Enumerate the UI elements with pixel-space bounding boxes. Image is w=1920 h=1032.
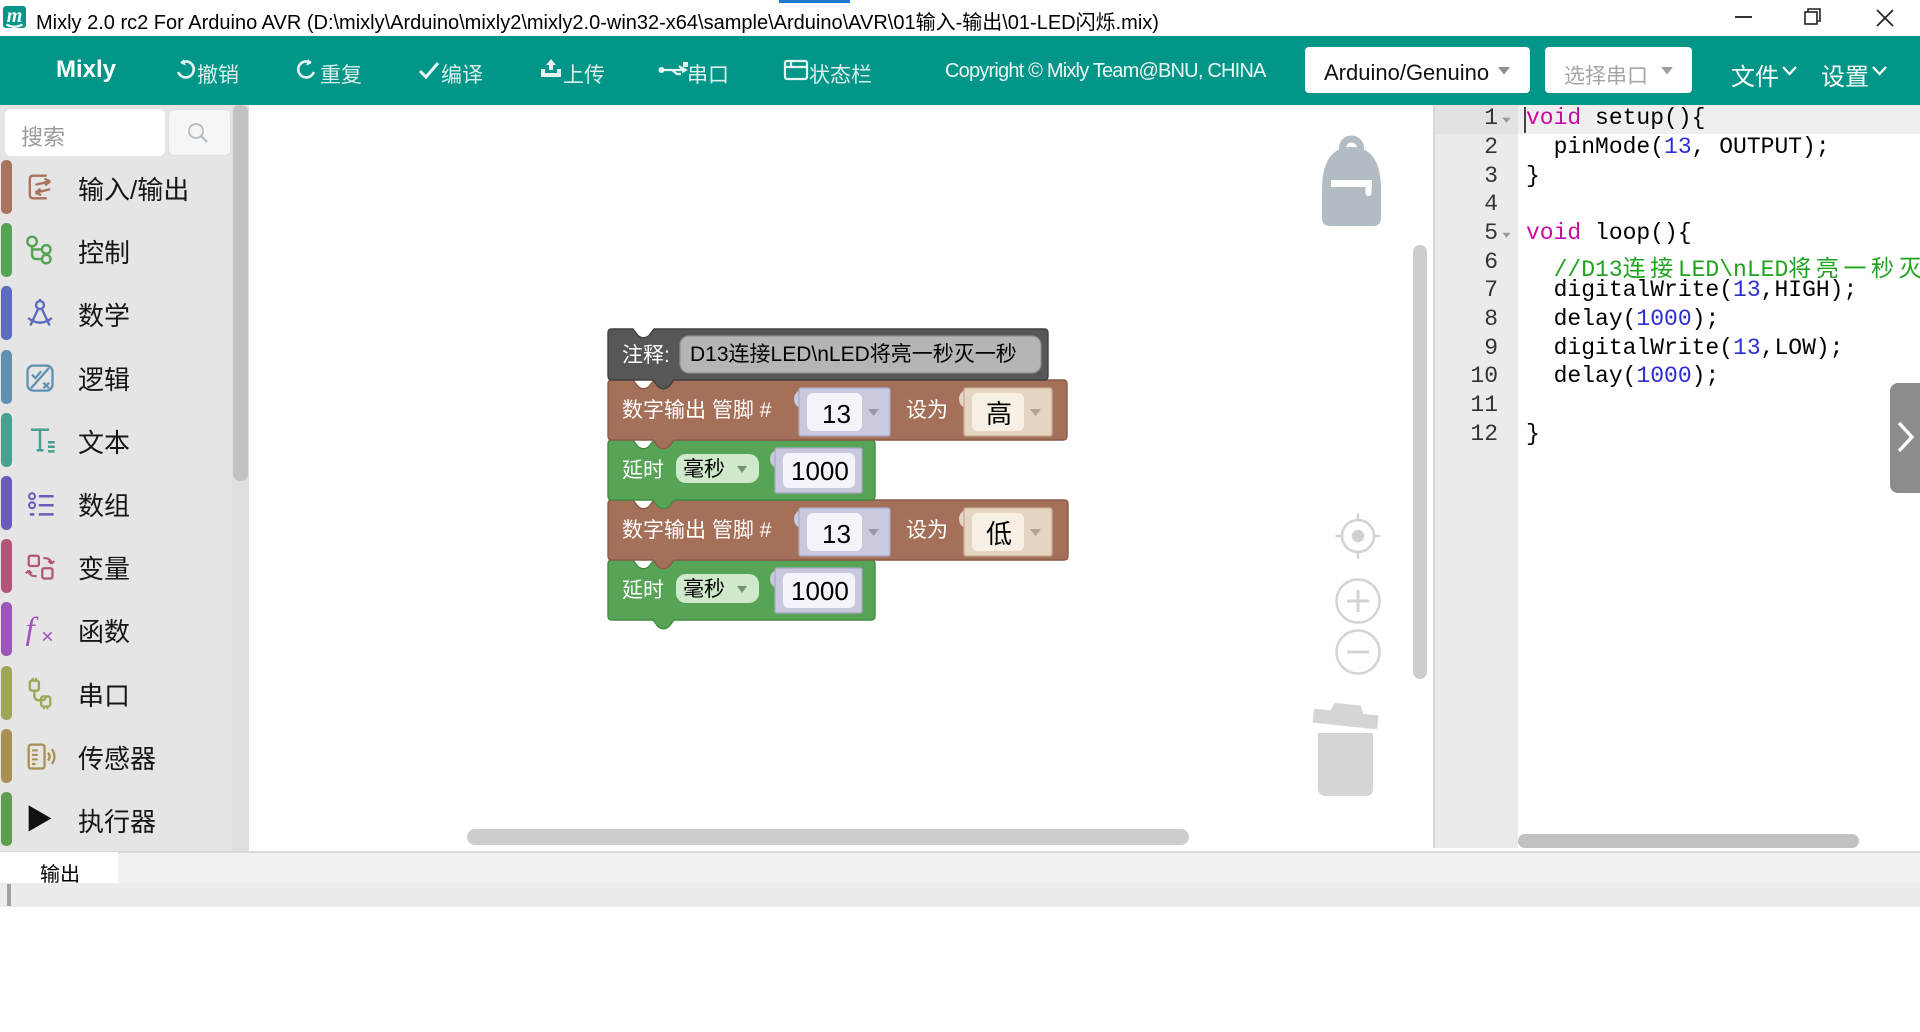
svg-text:设为: 设为	[906, 519, 948, 542]
svg-text:低: 低	[986, 519, 1012, 549]
svg-text:13: 13	[822, 519, 851, 549]
svg-text:1000: 1000	[791, 576, 849, 606]
svg-text:f: f	[25, 612, 39, 646]
svg-text:×: ×	[41, 625, 54, 646]
svg-text:13: 13	[822, 399, 851, 429]
svg-text:毫秒: 毫秒	[683, 458, 725, 481]
svg-text:1000: 1000	[791, 456, 849, 486]
svg-text:延时: 延时	[622, 579, 664, 602]
svg-text:数字输出 管脚 #: 数字输出 管脚 #	[622, 519, 772, 542]
svg-text:延时: 延时	[622, 459, 664, 482]
svg-text:D13连接LED\nLED将亮一秒灭一秒: D13连接LED\nLED将亮一秒灭一秒	[690, 343, 1017, 366]
svg-text:m: m	[7, 5, 23, 27]
svg-text:设为: 设为	[906, 399, 948, 422]
svg-text:高: 高	[986, 399, 1012, 429]
svg-text:注释:: 注释:	[622, 344, 670, 367]
svg-text:毫秒: 毫秒	[683, 578, 725, 601]
svg-text:数字输出 管脚 #: 数字输出 管脚 #	[622, 399, 772, 422]
